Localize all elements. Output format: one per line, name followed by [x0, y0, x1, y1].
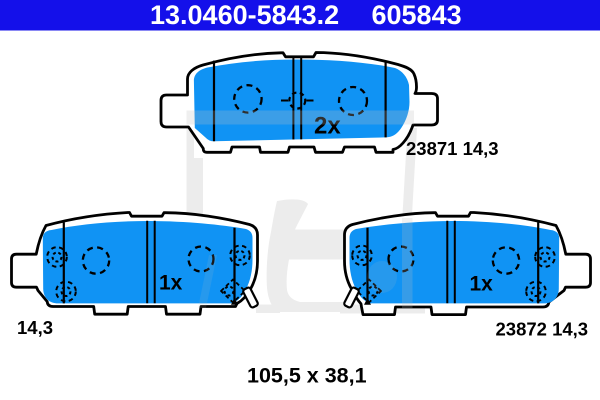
- svg-text:105,5 x 38,1: 105,5 x 38,1: [247, 364, 367, 388]
- svg-text:1x: 1x: [470, 273, 494, 296]
- svg-text:1x: 1x: [159, 272, 183, 295]
- svg-text:13.0460-5843.2: 13.0460-5843.2: [150, 0, 339, 30]
- svg-text:605843: 605843: [372, 0, 462, 30]
- svg-text:14,3: 14,3: [17, 317, 53, 338]
- svg-text:23872 14,3: 23872 14,3: [496, 319, 589, 340]
- svg-text:23871 14,3: 23871 14,3: [406, 138, 499, 159]
